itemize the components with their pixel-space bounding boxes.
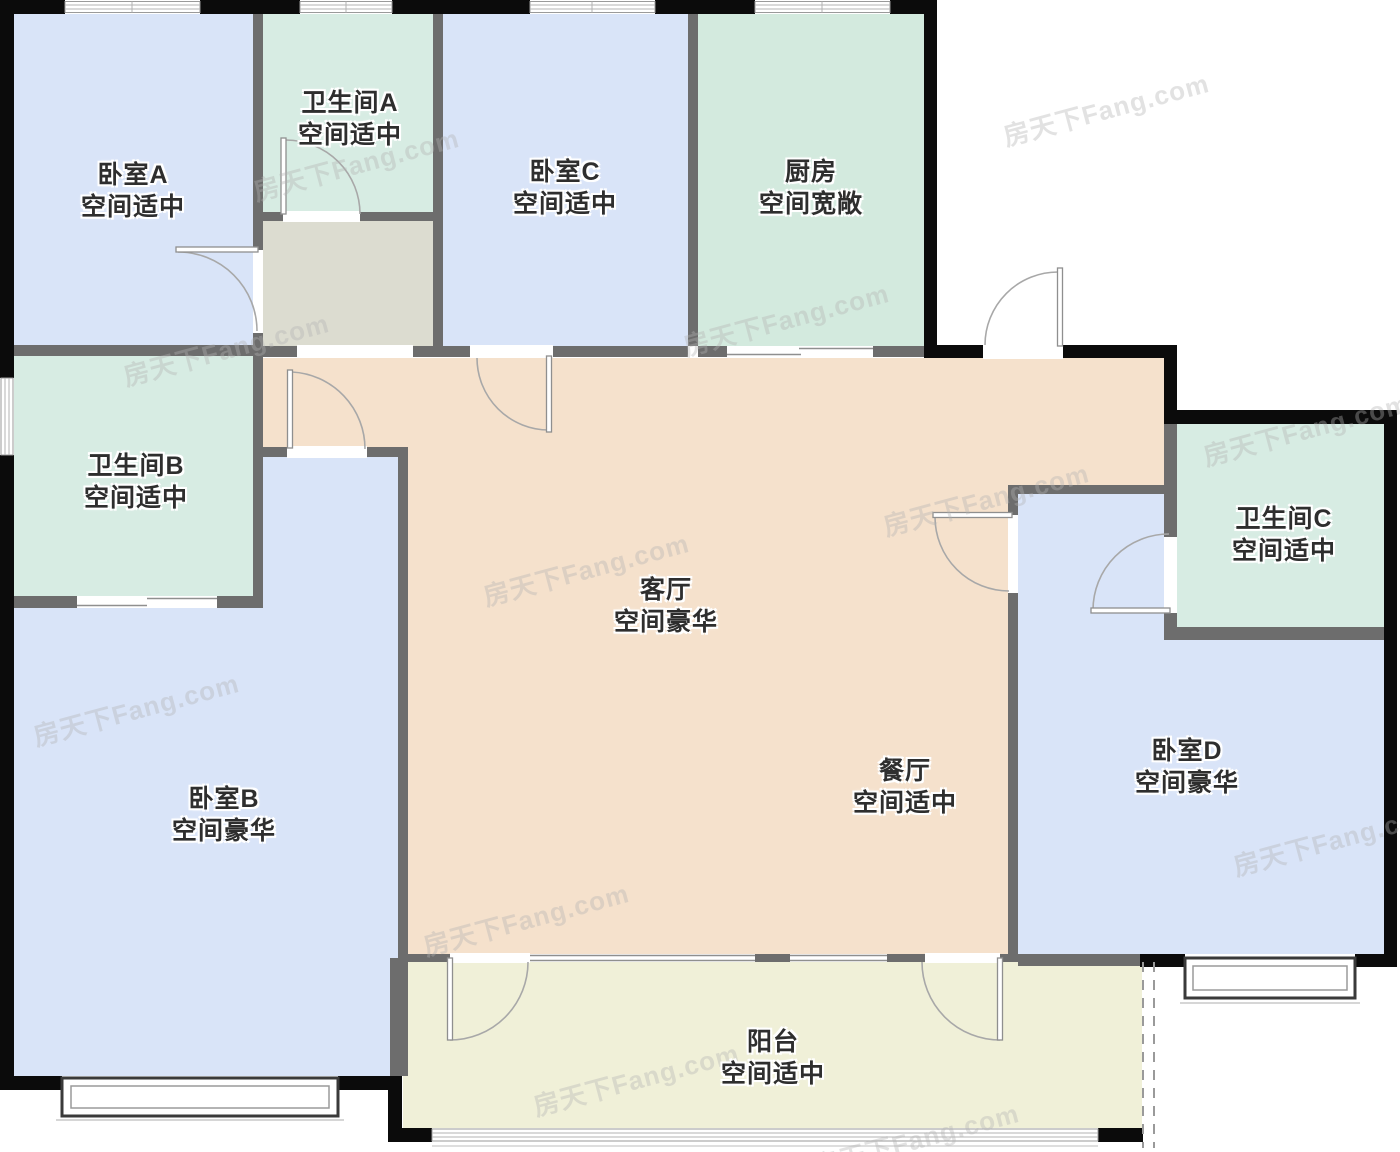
room-label-kitchen: 厨房 空间宽敞: [759, 156, 863, 220]
room-label-bedroom-b: 卧室B 空间豪华: [172, 783, 276, 847]
room-name: 卫生间B: [84, 450, 188, 482]
room-desc: 空间豪华: [614, 606, 718, 638]
floor-plan: 卧室A 空间适中 卫生间A 空间适中 卧室C 空间适中 厨房 空间宽敞 卫生间B…: [0, 0, 1400, 1152]
room-desc: 空间适中: [298, 119, 402, 151]
room-name: 阳台: [721, 1026, 825, 1058]
living-dining-floor: [408, 358, 1008, 954]
room-desc: 空间豪华: [172, 815, 276, 847]
bedroom-c-window: [530, 2, 655, 13]
room-name: 客厅: [614, 574, 718, 606]
entry-hall-floor: [1008, 358, 1168, 485]
bedroom-d-bay-window: [1180, 958, 1360, 1003]
room-label-bedroom-c: 卧室C 空间适中: [513, 156, 617, 220]
kitchen-window: [755, 2, 890, 13]
room-label-dining-room: 餐厅 空间适中: [853, 755, 957, 819]
room-desc: 空间适中: [84, 482, 188, 514]
room-label-balcony: 阳台 空间适中: [721, 1026, 825, 1090]
entry-door: [985, 268, 1063, 346]
room-desc: 空间适中: [721, 1058, 825, 1090]
room-name: 厨房: [759, 156, 863, 188]
room-name: 卧室A: [81, 159, 185, 191]
hallway-floor: [263, 358, 408, 447]
room-name: 卧室C: [513, 156, 617, 188]
room-name: 卧室D: [1135, 735, 1239, 767]
room-label-living-room: 客厅 空间豪华: [614, 574, 718, 638]
bathroom-b-sliding-door: [77, 596, 217, 608]
room-label-bathroom-b: 卫生间B 空间适中: [84, 450, 188, 514]
room-desc: 空间适中: [853, 787, 957, 819]
bathroom-a-window: [300, 2, 392, 13]
bathroom-b-window: [1, 378, 13, 455]
bedroom-a-window: [65, 2, 200, 13]
room-desc: 空间适中: [513, 188, 617, 220]
room-label-bedroom-d: 卧室D 空间豪华: [1135, 735, 1239, 799]
room-desc: 空间适中: [1232, 535, 1336, 567]
living-balcony-glazing: [530, 956, 887, 961]
room-label-bathroom-c: 卫生间C 空间适中: [1232, 503, 1336, 567]
room-desc: 空间宽敞: [759, 188, 863, 220]
bedroom-b-bay-window: [56, 1078, 344, 1120]
balcony-window: [432, 1129, 1098, 1146]
room-name: 卫生间C: [1232, 503, 1336, 535]
room-name: 餐厅: [853, 755, 957, 787]
room-desc: 空间适中: [81, 191, 185, 223]
room-name: 卫生间A: [298, 87, 402, 119]
room-label-bedroom-a: 卧室A 空间适中: [81, 159, 185, 223]
bedroom-b-floor-strip: [263, 453, 398, 608]
kitchen-sliding-door: [727, 346, 873, 357]
room-name: 卧室B: [172, 783, 276, 815]
room-label-bathroom-a: 卫生间A 空间适中: [298, 87, 402, 151]
room-desc: 空间豪华: [1135, 767, 1239, 799]
balcony-dashed-boundary: [1143, 962, 1154, 1148]
foyer-floor: [263, 221, 433, 346]
